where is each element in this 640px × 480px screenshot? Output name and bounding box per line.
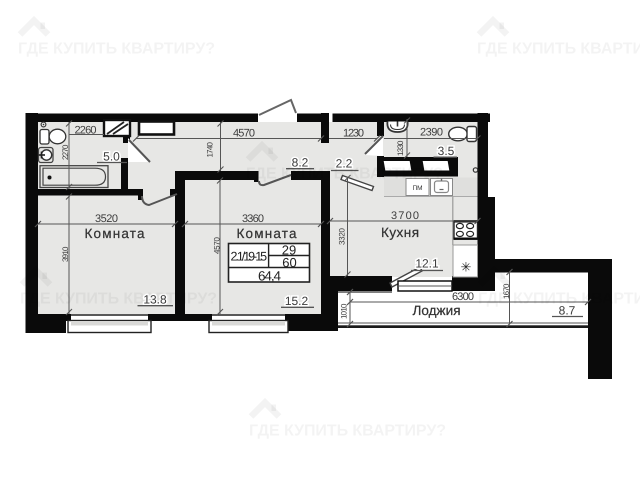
- svg-text:64,4: 64,4: [258, 268, 281, 283]
- svg-text:Кухня: Кухня: [381, 225, 419, 240]
- svg-text:3910: 3910: [61, 246, 70, 262]
- svg-text:ГДЕ КУПИТЬ КВАРТИРУ?: ГДЕ КУПИТЬ КВАРТИРУ?: [478, 291, 640, 308]
- svg-text:3320: 3320: [338, 227, 347, 245]
- svg-text:ГДЕ КУПИТЬ КВАРТИРУ?: ГДЕ КУПИТЬ КВАРТИРУ?: [18, 41, 216, 58]
- svg-text:ГДЕ КУПИТЬ КВАРТИРУ?: ГДЕ КУПИТЬ КВАРТИРУ?: [246, 166, 444, 183]
- svg-text:✳: ✳: [461, 260, 472, 275]
- svg-text:6300: 6300: [452, 291, 474, 303]
- svg-text:ПМ: ПМ: [412, 185, 422, 192]
- svg-text:60: 60: [282, 255, 296, 270]
- svg-text:15.2: 15.2: [285, 294, 309, 308]
- svg-text:3520: 3520: [95, 213, 118, 225]
- svg-text:5.0: 5.0: [103, 150, 120, 164]
- svg-text:2390: 2390: [420, 127, 443, 139]
- svg-text:4570: 4570: [213, 236, 222, 254]
- svg-text:1740: 1740: [206, 141, 215, 157]
- svg-text:2.1/19-15: 2.1/19-15: [231, 250, 268, 264]
- svg-text:12.1: 12.1: [415, 257, 439, 271]
- svg-text:2260: 2260: [75, 125, 97, 137]
- svg-text:2270: 2270: [61, 144, 70, 160]
- svg-text:ГДЕ КУПИТЬ КВАРТИРУ?: ГДЕ КУПИТЬ КВАРТИРУ?: [249, 423, 447, 440]
- svg-text:ГДЕ КУПИТЬ КВАРТИРУ?: ГДЕ КУПИТЬ КВАРТИРУ?: [477, 41, 640, 58]
- svg-text:1230: 1230: [343, 128, 364, 140]
- svg-text:1010: 1010: [340, 303, 349, 319]
- svg-text:3700: 3700: [391, 210, 419, 222]
- svg-text:4570: 4570: [233, 128, 255, 140]
- svg-text:ГДЕ КУПИТЬ КВАРТИРУ?: ГДЕ КУПИТЬ КВАРТИРУ?: [20, 291, 218, 308]
- svg-text:3360: 3360: [242, 213, 264, 225]
- svg-text:1330: 1330: [396, 140, 405, 156]
- svg-text:Лоджия: Лоджия: [413, 303, 461, 318]
- svg-text:3.5: 3.5: [438, 144, 455, 158]
